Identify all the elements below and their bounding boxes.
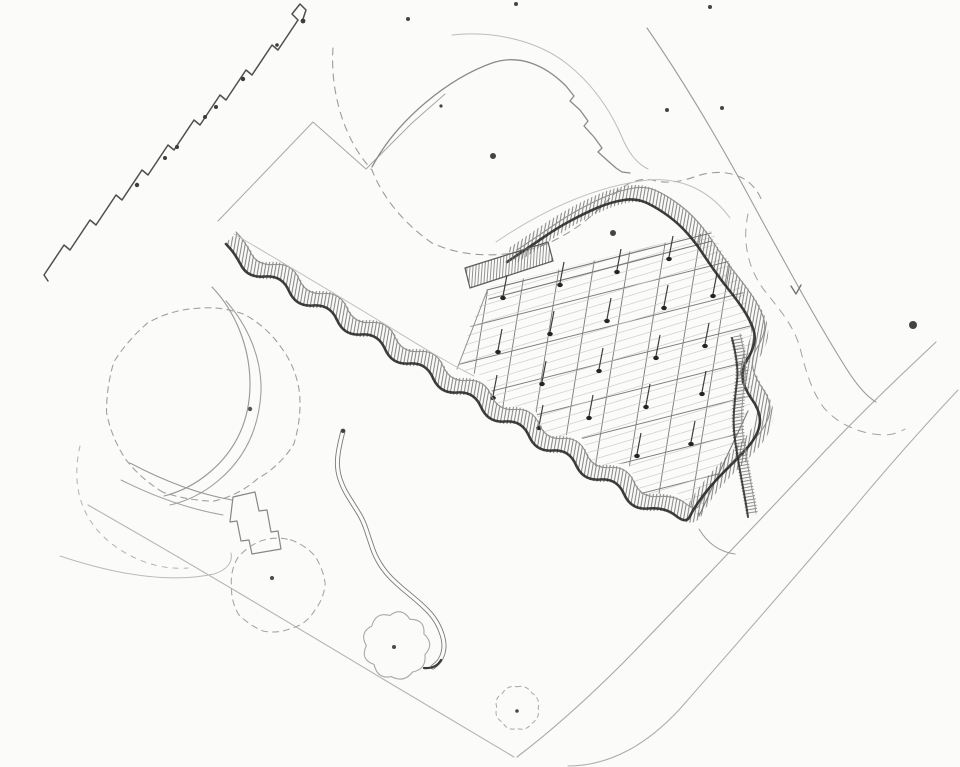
small-tree-dot [515,709,519,713]
cloud-tree-dot [392,645,396,649]
sketch-canvas [0,0,960,767]
site-plan-sketch-svg [0,0,960,767]
round-tree-dot [270,576,274,580]
